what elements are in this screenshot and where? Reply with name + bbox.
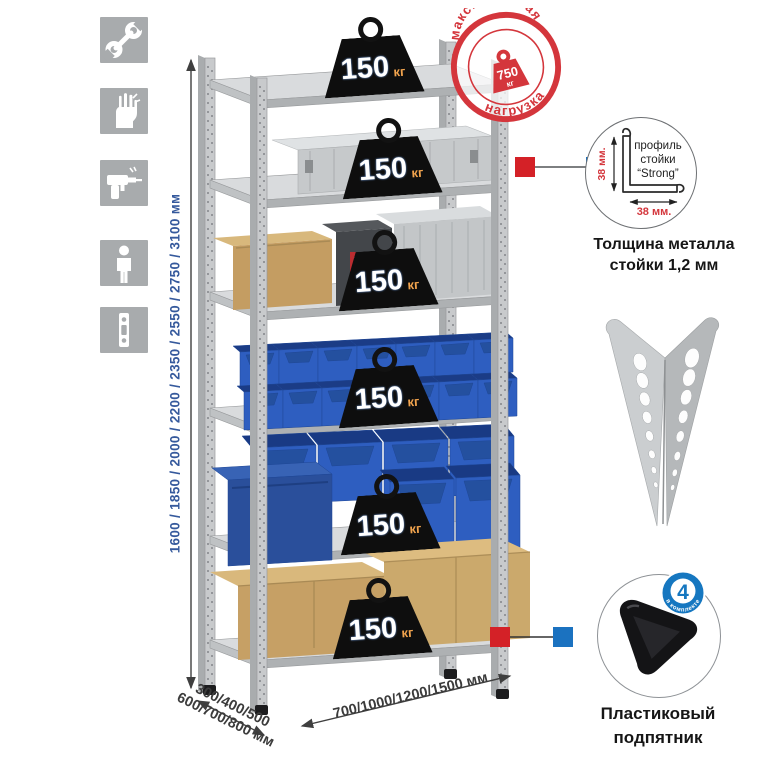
- profile-label-3: “Strong”: [637, 168, 679, 180]
- drill-glyph: [100, 160, 148, 206]
- shelf-load-weight: 150кг: [335, 471, 440, 556]
- profile-label-2: стойки: [640, 154, 675, 166]
- foot-caption-line-2: подпятник: [614, 728, 703, 747]
- badge-count: 4: [677, 581, 689, 604]
- shelf-load-weight: 150кг: [319, 14, 424, 99]
- load-unit: кг: [411, 164, 424, 180]
- thickness-line-1: Толщина металла: [593, 236, 734, 253]
- wrench-glyph: [100, 17, 148, 63]
- detail-marker-blue-bottom: [553, 627, 573, 647]
- included-quantity-badge: 4 в комплекте: [660, 570, 706, 616]
- metal-thickness-caption: Толщина металла стойки 1,2 мм: [578, 234, 750, 276]
- gloves-icon: [100, 88, 148, 134]
- load-value: 150: [358, 153, 408, 185]
- foot-caption-line-1: Пластиковый: [601, 704, 716, 723]
- profile-dim-vertical: 38 мм.: [596, 147, 608, 180]
- person-icon: [100, 240, 148, 286]
- rack-profile-glyph: [100, 307, 148, 353]
- profile-detail-circle: 38 мм. 38 мм. профиль стойки “Strong”: [585, 117, 697, 229]
- shelf-load-weight: 150кг: [327, 575, 432, 660]
- upright-back-left: [198, 55, 215, 694]
- upright-marker-red-top: [515, 157, 535, 177]
- profile-dim-horizontal: 38 мм.: [637, 206, 672, 218]
- load-value: 150: [354, 382, 404, 414]
- product-infographic: 1600 / 1850 / 2000 / 2200 / 2350 / 2550 …: [0, 0, 765, 765]
- load-value: 150: [354, 265, 404, 297]
- drill-icon: [100, 160, 148, 206]
- load-unit: кг: [401, 624, 414, 640]
- shelf-load-weight: 150кг: [333, 227, 438, 312]
- height-dimension-label: 1600 / 1850 / 2000 / 2200 / 2350 / 2550 …: [168, 124, 185, 624]
- upright-front-right: [491, 59, 508, 698]
- upright-marker-red-bottom: [490, 627, 510, 647]
- profile-section-drawing: 38 мм. 38 мм. профиль стойки “Strong”: [586, 118, 695, 227]
- person-glyph: [100, 240, 148, 286]
- load-value: 150: [340, 52, 390, 84]
- shelf-load-weight: 150кг: [333, 344, 438, 429]
- max-load-stamp: максимальная нагрузка 750 кг: [447, 8, 565, 126]
- profile-label-1: профиль: [634, 140, 682, 152]
- load-unit: кг: [393, 63, 406, 79]
- gloves-glyph: [100, 88, 148, 134]
- load-unit: кг: [409, 520, 422, 536]
- upright-front-left: [250, 75, 267, 714]
- shelf-load-weight: 150кг: [337, 115, 442, 200]
- rack-profile-icon: [100, 307, 148, 353]
- wrench-icon: [100, 17, 148, 63]
- load-unit: кг: [407, 393, 420, 409]
- plastic-foot-caption: Пластиковый подпятник: [568, 702, 748, 750]
- thickness-line-2: стойки 1,2 мм: [610, 257, 719, 274]
- load-unit: кг: [407, 276, 420, 292]
- load-value: 150: [356, 509, 406, 541]
- load-value: 150: [348, 613, 398, 645]
- angle-post-image: [593, 298, 743, 533]
